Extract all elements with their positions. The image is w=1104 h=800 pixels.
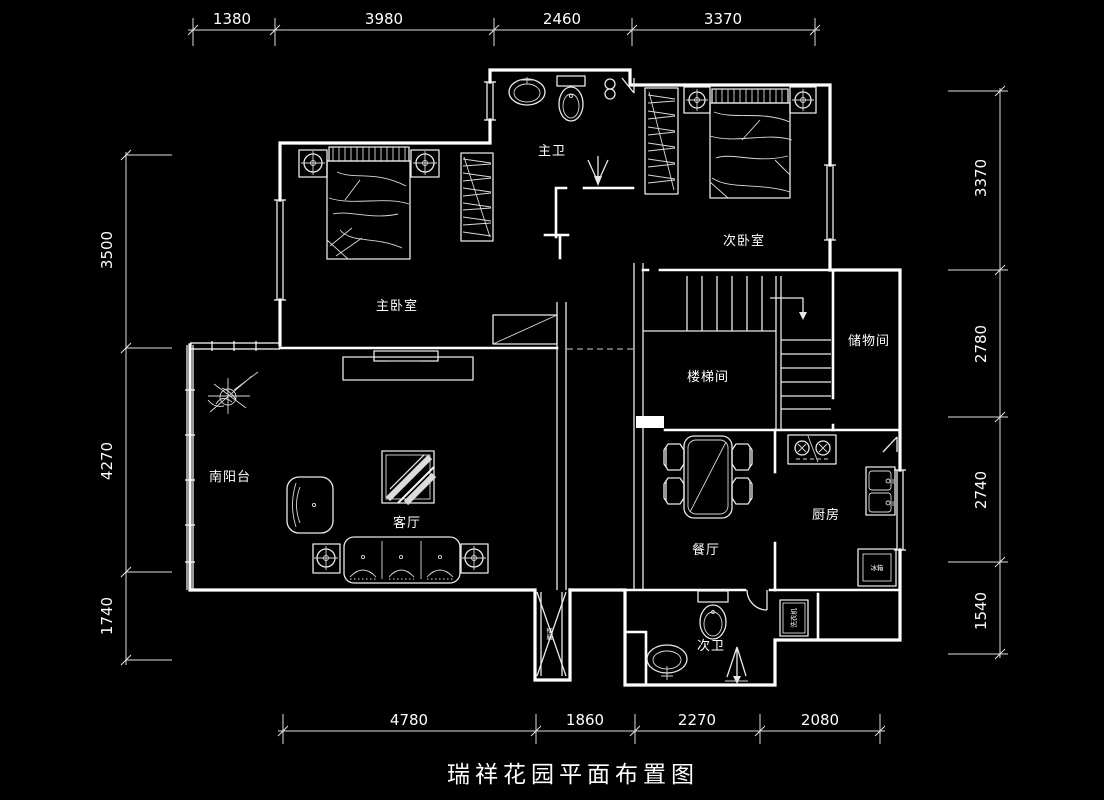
dim-left-3: 1740: [98, 597, 116, 635]
fridge-label: 冰箱: [871, 563, 885, 572]
room-label-stairwell: 楼梯间: [687, 370, 729, 385]
room-label-second-bath: 次卫: [697, 638, 725, 654]
master-bedroom-furniture: [299, 147, 557, 344]
room-label-dining-room: 餐厅: [692, 542, 720, 558]
interior-walls: [280, 188, 900, 685]
dim-left-2: 4270: [98, 442, 116, 480]
dim-top-4: 3370: [704, 10, 742, 28]
stair-door-threshold: [636, 416, 664, 428]
shower-symbol-2: [727, 647, 746, 678]
dimension-chain-top: 1380 3980 2460 3370: [188, 10, 820, 46]
dim-top-3: 2460: [543, 10, 581, 28]
second-bedroom-furniture: [645, 87, 816, 198]
second-bath-fixtures: [647, 591, 748, 684]
room-label-living-room: 客厅: [393, 515, 421, 531]
room-label-second-bedroom: 次卧室: [723, 233, 765, 249]
room-label-storage: 储物间: [848, 334, 890, 349]
dim-right-2: 2780: [972, 325, 990, 363]
sofa: [344, 537, 460, 583]
drawing-title: 瑞祥花园平面布置图: [447, 762, 699, 788]
dining-furniture: [664, 436, 752, 518]
dim-top-1: 1380: [213, 10, 251, 28]
floor-plan-canvas: 1380 3980 2460 3370 4780 1860 2270 2080 …: [0, 0, 1104, 800]
staircase: [643, 276, 831, 430]
room-label-kitchen: 厨房: [812, 507, 840, 523]
dim-left-1: 3500: [98, 231, 116, 269]
balcony-plant: [208, 372, 258, 414]
flue-label: 烟道: [545, 627, 554, 641]
room-label-balcony: 南阳台: [209, 469, 251, 485]
master-bath-fixtures: [509, 76, 615, 186]
washing-machine: 洗衣机: [780, 600, 808, 636]
dim-right-1: 3370: [972, 159, 990, 197]
room-label-master-bath: 主卫: [538, 144, 566, 159]
dim-bottom-1: 4780: [390, 711, 428, 729]
dim-right-3: 2740: [972, 471, 990, 509]
dim-right-4: 1540: [972, 592, 990, 630]
tv: [374, 351, 438, 361]
flue-shaft: 烟道: [537, 592, 566, 676]
kitchen-fixtures: 冰箱: [788, 435, 896, 586]
dim-bottom-2: 1860: [566, 711, 604, 729]
dimension-chain-left: 3500 4270 1740: [98, 150, 172, 665]
armchair: [287, 477, 333, 533]
floor-plan-drawing: 1380 3980 2460 3370 4780 1860 2270 2080 …: [0, 0, 1104, 800]
living-room-furniture: [287, 351, 488, 583]
room-label-master-bedroom: 主卧室: [376, 298, 418, 314]
washing-machine-label: 洗衣机: [789, 608, 798, 628]
dim-top-2: 3980: [365, 10, 403, 28]
dim-bottom-3: 2270: [678, 711, 716, 729]
dimension-chain-right: 3370 2780 2740 1540: [948, 86, 1008, 659]
stair-direction-arrow: [770, 298, 803, 314]
dimension-chain-bottom: 4780 1860 2270 2080: [278, 711, 885, 744]
dim-bottom-4: 2080: [801, 711, 839, 729]
exterior-walls: [190, 70, 900, 685]
